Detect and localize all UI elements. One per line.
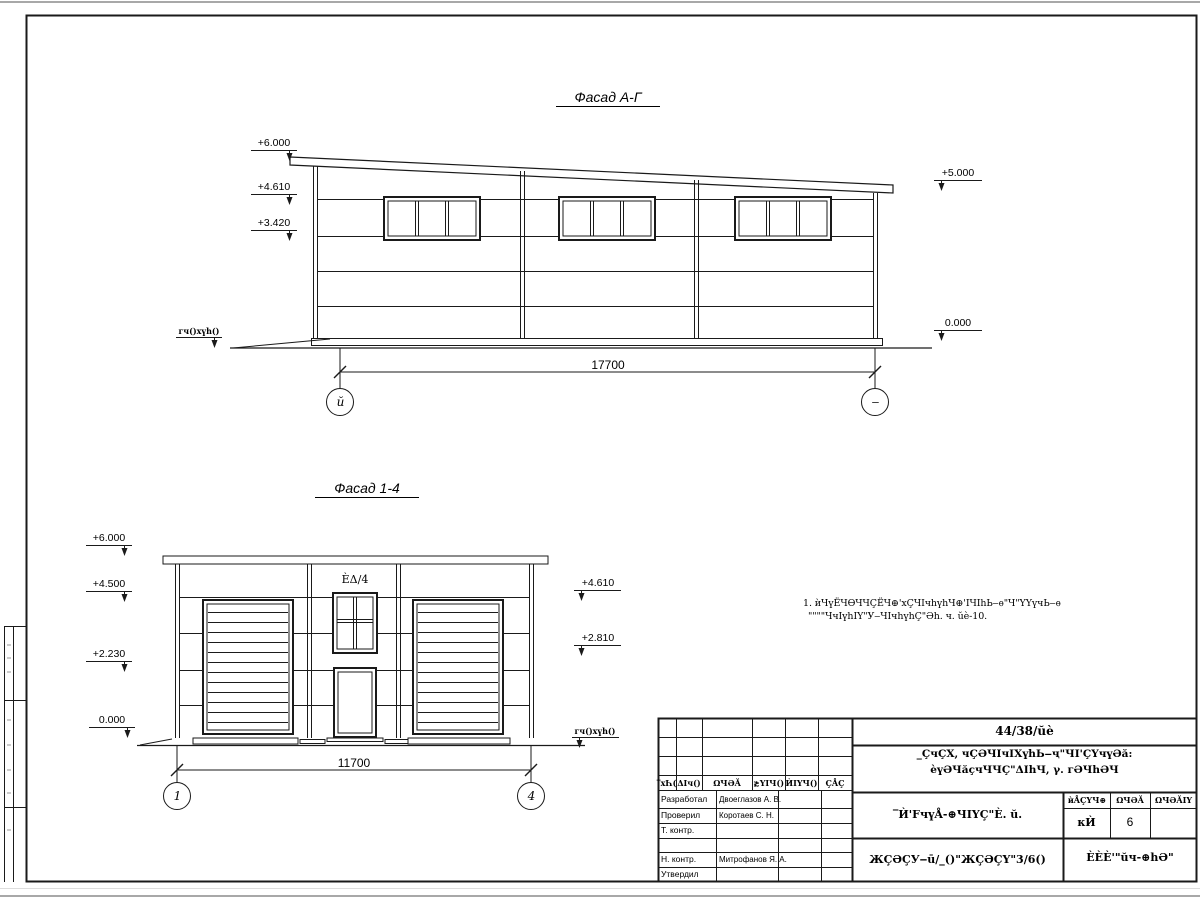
- facade-14-elevation-6000: +6.000: [86, 533, 132, 544]
- titleblock-role-tcontrol: Т. контр.: [659, 824, 715, 837]
- facade-ag-elevation-5000: +5.000: [934, 168, 982, 179]
- titleblock-role-developed: Разработал: [659, 793, 715, 806]
- titleblock-stage-value: ᴋЍ: [1063, 810, 1110, 836]
- titleblock-stage-header: ѝÅÇҮЧ⊕: [1064, 794, 1110, 806]
- facade-14-elevation-4610: +4.610: [575, 578, 621, 589]
- titleblock-organization: ÈÈÈ'"ŭч-⊕һӘ": [1063, 848, 1197, 868]
- titleblock-document-number: ЖÇӘÇУ‒ū/_()"ЖÇӘÇҮ"3/6(): [852, 850, 1063, 870]
- drawing-sheet: Фасад А-Г +6.000 +4.610 +3.420 ᴦч()хүһ()…: [0, 0, 1200, 900]
- titleblock-sheet-number: 6: [1110, 810, 1150, 836]
- facade-14-center-window: [333, 593, 377, 653]
- facade-ag-elevation-marks: [176, 150, 982, 348]
- facade-14-center-door: [334, 668, 376, 737]
- titleblock-document-code: 44/38/ŭè: [852, 723, 1197, 741]
- note-line-1: 1. ѝЧүЁЧѲЧЧÇЁЧ⊕'хÇЧΙчһүһЧ⊕'ΙЧΙһЬ‒ѳ"Ч"ҮҮү…: [803, 598, 1061, 609]
- titleblock-sheets-header: ΩЧӘĂΙΥ: [1150, 794, 1197, 806]
- titleblock-col-izm: ‾хҺ(: [657, 777, 676, 789]
- titleblock-name-ncontrol: Митрофанов Я. А.: [717, 853, 778, 866]
- titleblock-name-checked: Коротаев С. Н.: [717, 809, 778, 822]
- facade-ag-elevation-3420: +3.420: [251, 218, 297, 229]
- facade-ag-dimension: 17700: [570, 359, 646, 371]
- left-side-stamp: [4, 626, 26, 882]
- facade-14-title: Фасад 1-4: [315, 480, 419, 498]
- facade-ag-elevation-6000: +6.000: [251, 138, 297, 149]
- facade-14-dimension: 11700: [316, 757, 392, 769]
- titleblock-role-checked: Проверил: [659, 809, 715, 822]
- titleblock-project-line-1: _ÇчÇХ, чÇӘЧΙчΙХүһЬ‒ҷ"ЧΙ'ÇҮчүӘă:: [852, 748, 1197, 762]
- titleblock-sheet-header: ΩЧӘĂ: [1110, 794, 1150, 806]
- titleblock-col-podp: ЍΙҮЧ(): [785, 777, 818, 789]
- facade-14-elevation-0000: 0.000: [89, 715, 135, 726]
- facade-14-elevation-4500: +4.500: [86, 579, 132, 590]
- facade-ag-axis-g: ‒: [862, 395, 889, 409]
- facade-14-elevation-2230: +2.230: [86, 649, 132, 660]
- titleblock-name-developed: Двоеглазов А. В.: [717, 793, 778, 806]
- titleblock-col-ndok: ≵ҮΙЧ(): [752, 777, 785, 789]
- facade-14-axis-4: 4: [518, 789, 545, 803]
- facade-ag-building: [230, 157, 932, 348]
- facade-14-right-gate: [413, 600, 503, 734]
- note-line-2: """"ЧчΙүһΙҮ"У‒ЧΙчһүһÇ"Әһ. ч. ŭè-10.: [808, 611, 987, 622]
- titleblock-col-koluch: ΔΙч(): [676, 777, 702, 789]
- titleblock-col-list: ΩЧӘĂ: [702, 777, 752, 789]
- facade-ag-title: Фасад А-Г: [556, 89, 660, 107]
- facade-ag-elevation-0000: 0.000: [934, 318, 982, 329]
- titleblock-role-approved: Утвердил: [659, 868, 715, 881]
- titleblock-role-ncontrol: Н. контр.: [659, 853, 715, 866]
- facade-14-axis-1: 1: [164, 789, 191, 803]
- facade-ag-windows: [384, 197, 831, 240]
- facade-14-window-label: ÈΔ/4: [332, 574, 378, 587]
- titleblock-col-data: ÇÅÇ: [818, 777, 852, 789]
- facade-14-dimension-lines: [164, 745, 545, 810]
- facade-ag-axis-a: ŭ: [327, 395, 354, 409]
- facade-14-left-gate: [203, 600, 293, 734]
- facade-14-ground-level-label: ᴦч()хүһ(): [572, 726, 618, 736]
- titleblock-project-line-2: èүӘЧăçчЧЧÇ"ΔΙһЧ, γ. ᴦӘЧһӘЧ: [852, 764, 1197, 778]
- titleblock-sheet-title: ‾Ѝ'FчүÅ-⊕ЧΙҮÇ"È. ŭ.: [852, 806, 1063, 824]
- facade-14-elevation-2810: +2.810: [575, 633, 621, 644]
- facade-ag-elevation-4610: +4.610: [251, 182, 297, 193]
- facade-ag-ground-level-label: ᴦч()хүһ(): [176, 326, 222, 336]
